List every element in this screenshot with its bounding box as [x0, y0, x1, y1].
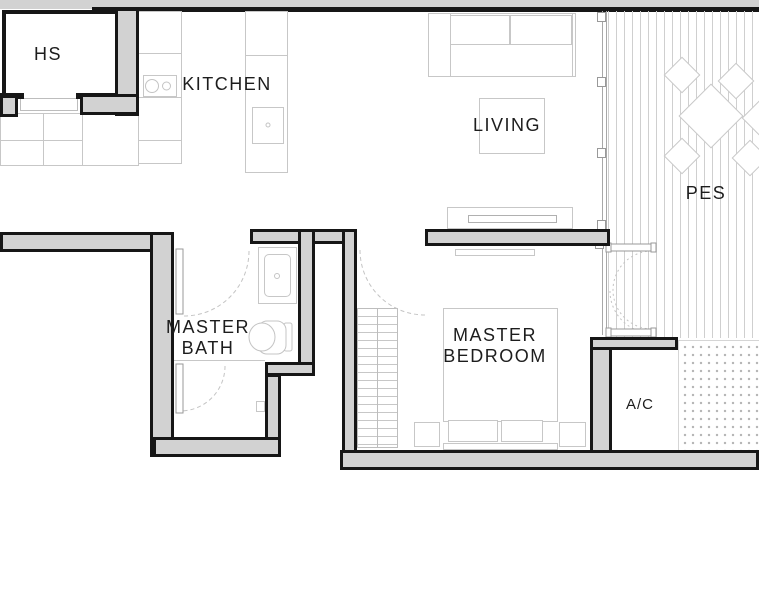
- pes-door-hinge: [651, 243, 656, 252]
- pes-door-leaf: [610, 329, 653, 336]
- pes-door-hinge: [651, 328, 656, 337]
- wall-hs-kitchen-foot: [80, 94, 139, 115]
- pes-door-leaf: [610, 244, 653, 251]
- sink-faucet-dot: [266, 123, 270, 127]
- room-label-pes: PES: [666, 183, 746, 204]
- pes-door-hinge: [606, 328, 611, 337]
- room-label-master-bath: MASTER BATH: [166, 317, 250, 359]
- room-label-ac: A/C: [600, 394, 680, 415]
- pes-door-arc: [613, 251, 652, 329]
- wall-bath-south: [153, 437, 281, 457]
- bath-door-leaf: [176, 249, 183, 314]
- sink-faucet-dot: [275, 274, 280, 279]
- wall-bath-east-upper: [298, 229, 315, 369]
- pes-door-arc: [610, 291, 652, 333]
- wall-stub-entry: [0, 95, 18, 117]
- room-label-line: MASTER: [423, 325, 567, 346]
- room-label-kitchen: KITCHEN: [157, 74, 297, 95]
- toilet-bowl: [249, 323, 275, 351]
- bath-door-arc: [184, 251, 249, 316]
- room-label-living: LIVING: [447, 115, 567, 136]
- floor-plan: HS KITCHEN LIVING PES MASTER BATH MASTER…: [0, 0, 759, 600]
- shower-door-arc: [181, 366, 225, 411]
- shower-door-leaf: [176, 364, 183, 413]
- room-label-hs: HS: [8, 44, 88, 65]
- room-label-line: MASTER: [166, 317, 250, 338]
- wall-ac-north: [590, 337, 678, 350]
- room-label-master-bedroom: MASTER BEDROOM: [423, 325, 567, 367]
- wall-bath-east-lower: [265, 374, 281, 444]
- bedroom-door-arc: [360, 250, 425, 315]
- wall-foyer-south: [0, 232, 160, 252]
- room-label-line: BATH: [166, 338, 250, 359]
- room-label-line: BEDROOM: [423, 346, 567, 367]
- wall-bedroom-west: [342, 229, 357, 470]
- wall-bedroom-north: [425, 229, 610, 246]
- wall-unit-south: [340, 450, 759, 470]
